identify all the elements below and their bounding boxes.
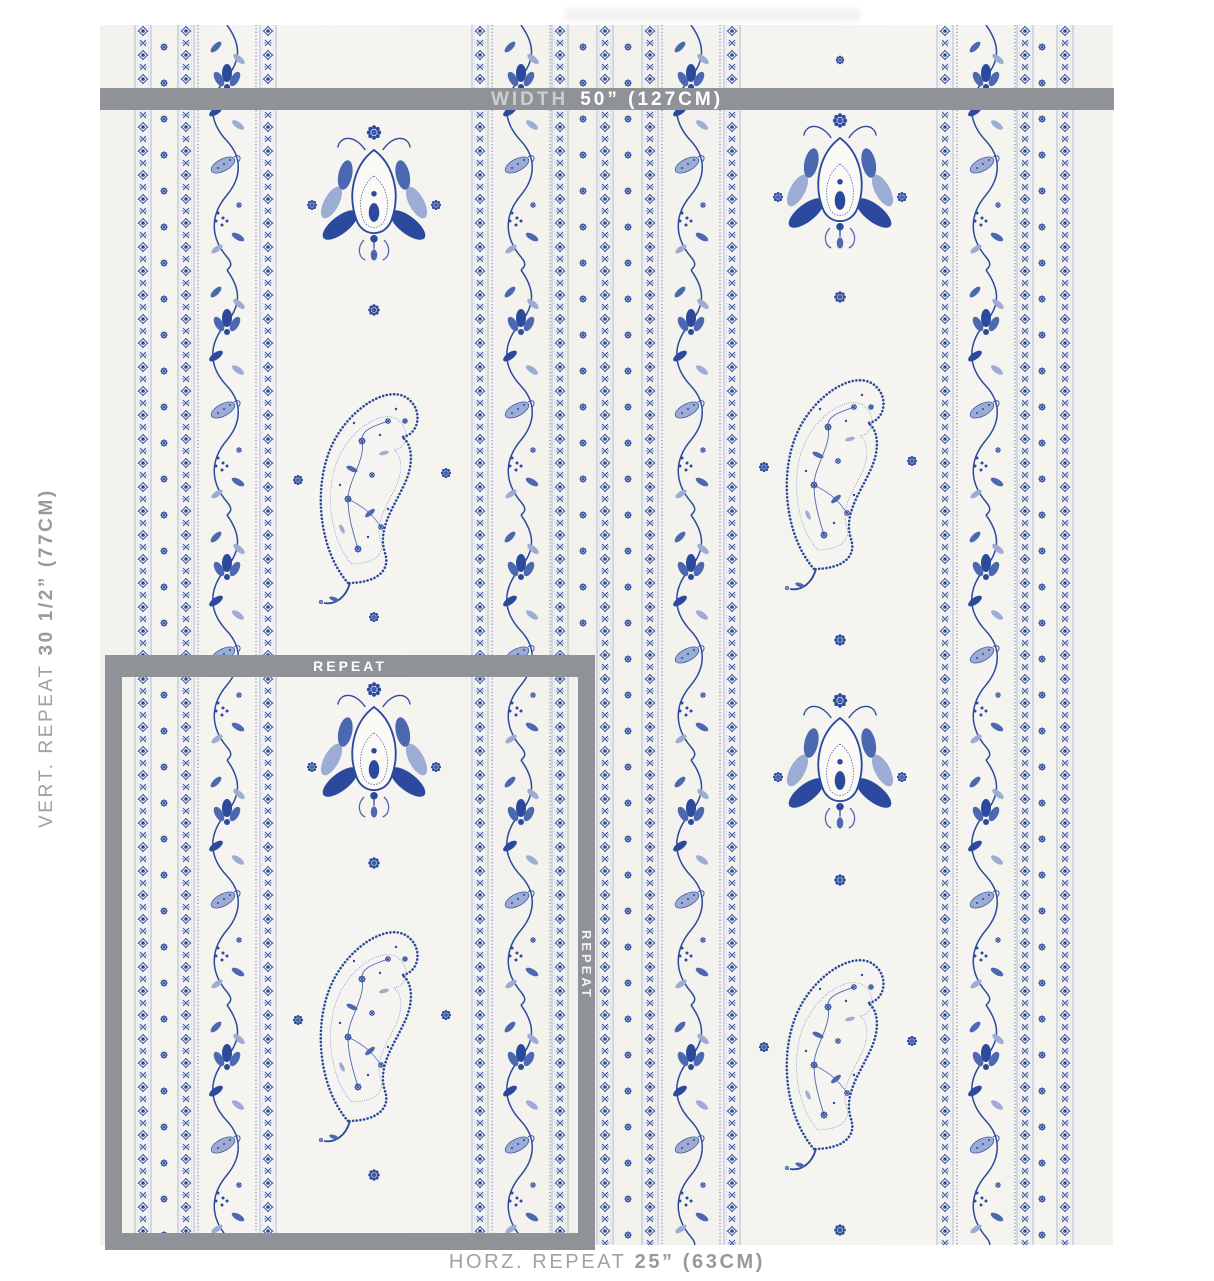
- vert-repeat-label: VERT. REPEAT 30 1/2” (77CM): [36, 488, 58, 828]
- horz-repeat-label: HORZ. REPEAT 25” (63CM): [0, 1251, 1214, 1274]
- vert-repeat-prefix: VERT. REPEAT: [36, 663, 57, 828]
- fabric-swatch[interactable]: [100, 25, 1113, 1245]
- vert-repeat-value: 30 1/2” (77CM): [36, 488, 57, 655]
- repeat-label-vertical: REPEAT: [577, 880, 596, 1050]
- horz-repeat-prefix: HORZ. REPEAT: [449, 1251, 627, 1273]
- width-measure-bar: WIDTH50” (127CM): [100, 88, 1114, 110]
- faint-artifact: [565, 8, 860, 21]
- fabric-pattern-svg: [100, 25, 1113, 1245]
- width-label-prefix: WIDTH: [491, 89, 568, 110]
- repeat-box-top-border: REPEAT: [105, 655, 595, 677]
- repeat-box-left-border: [105, 655, 122, 1250]
- horz-repeat-value: 25” (63CM): [635, 1251, 765, 1273]
- repeat-box-bottom-border: [105, 1233, 595, 1250]
- repeat-label: REPEAT: [313, 659, 387, 673]
- width-label: WIDTH50” (127CM): [491, 90, 723, 109]
- fabric-product-image: WIDTH50” (127CM) REPEAT REPEAT VERT. REP…: [0, 0, 1214, 1281]
- width-label-value: 50” (127CM): [580, 89, 723, 110]
